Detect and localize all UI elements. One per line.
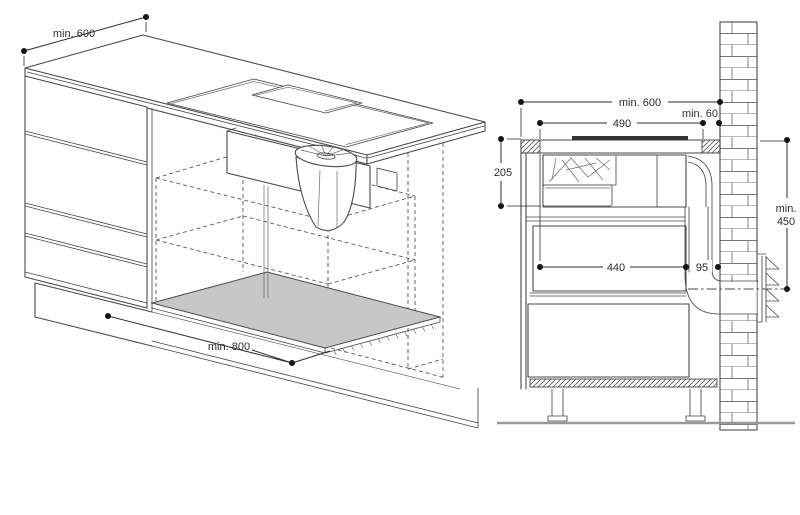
blower-side-box xyxy=(377,168,397,191)
floor-panel-iso xyxy=(152,272,440,355)
louvre-vent xyxy=(757,254,779,322)
cabinet-rail xyxy=(530,293,686,296)
installation-diagram: min. 600 min. 800 xyxy=(0,0,800,515)
dim-label-wall-gap: min. 60 xyxy=(682,108,718,120)
cabinet-legs xyxy=(548,389,705,421)
installation-diagram-page: min. 600 min. 800 xyxy=(0,0,800,515)
brick-wall xyxy=(720,22,757,430)
hob-glass xyxy=(572,136,688,141)
dim-label-cutout: 490 xyxy=(613,118,631,130)
worktop-cut-hatch-left xyxy=(521,140,540,153)
base-panel-hatched xyxy=(530,379,717,387)
dim-label-vent-height-1: min. xyxy=(776,203,797,215)
upper-compartment xyxy=(533,226,686,291)
dim-label-vent-height-2: 450 xyxy=(777,216,795,228)
extractor-unit-section xyxy=(543,155,686,207)
drawer-cabinet-iso xyxy=(25,76,152,346)
worktop-cut-hatch-right xyxy=(702,140,720,153)
dim-label-inner-width: 440 xyxy=(607,262,625,274)
lower-compartment xyxy=(528,304,689,377)
dim-label-floor-iso: min. 800 xyxy=(208,341,250,353)
dim-cutout-section: 490 xyxy=(537,118,706,139)
dim-label-unit-height: 205 xyxy=(494,167,512,179)
dim-label-duct-depth: 95 xyxy=(696,262,708,274)
dim-label-total: min. 600 xyxy=(619,97,661,109)
cabinet-rail xyxy=(526,217,685,221)
worktop-section xyxy=(521,136,720,153)
iso-view: min. 600 min. 800 xyxy=(21,14,485,428)
dim-label-depth-iso: min. 600 xyxy=(53,28,95,40)
section-view: min. 600 490 min. 60 205 440 xyxy=(494,22,797,430)
